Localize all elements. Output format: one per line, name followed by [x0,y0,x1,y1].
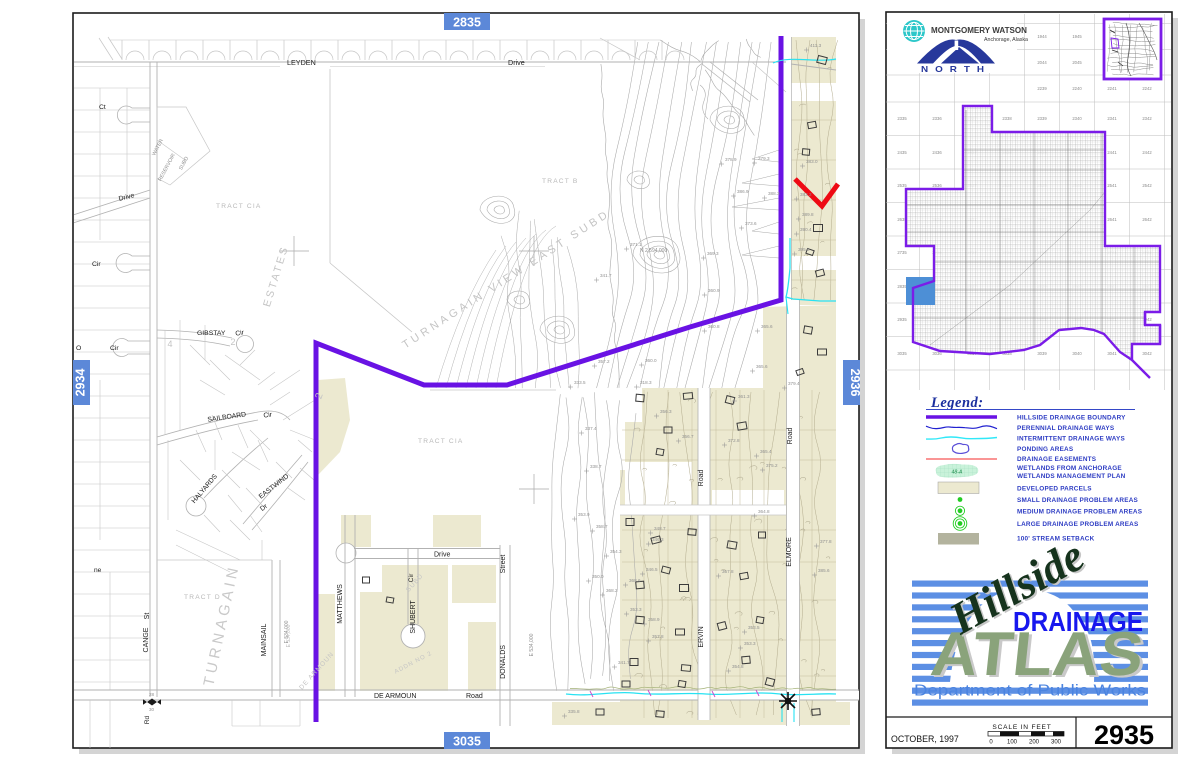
svg-text:341.7: 341.7 [618,660,630,665]
svg-text:TRACT B: TRACT B [542,178,579,185]
svg-text:356.7: 356.7 [682,434,694,439]
svg-text:2435: 2435 [897,150,907,155]
svg-text:Anchorage, Alaska: Anchorage, Alaska [984,37,1029,43]
svg-text:100: 100 [1007,740,1018,746]
svg-text:368.2: 368.2 [606,588,618,593]
svg-text:2535: 2535 [897,183,907,188]
svg-text:2934: 2934 [74,369,88,397]
svg-text:346.5: 346.5 [646,567,658,572]
svg-text:378.9: 378.9 [725,157,737,162]
svg-text:372.8: 372.8 [728,438,740,443]
svg-text:2044: 2044 [1037,60,1047,65]
svg-text:364.8: 364.8 [758,509,770,514]
svg-text:354.8: 354.8 [732,664,744,669]
svg-text:369.3: 369.3 [707,251,719,256]
svg-text:E 534,000: E 534,000 [286,624,292,647]
svg-text:3041: 3041 [1107,351,1117,356]
svg-text:357.8: 357.8 [652,634,664,639]
svg-text:357.8: 357.8 [722,569,734,574]
svg-text:SMALL DRAINAGE PROBLEM AREA: SMALL DRAINAGE PROBLEM AREAS [1017,497,1139,504]
svg-text:353.9: 353.9 [578,512,590,517]
svg-text:338.7: 338.7 [590,464,602,469]
svg-text:DRAINAGE: DRAINAGE [1013,606,1143,637]
svg-text:3042: 3042 [1142,351,1152,356]
svg-text:2340: 2340 [1072,116,1082,121]
svg-text:MEDIUM DRAINAGE PROBLEM ARE: MEDIUM DRAINAGE PROBLEM AREAS [1017,508,1143,515]
svg-text:371.1: 371.1 [630,242,642,247]
svg-text:335.8: 335.8 [568,709,580,714]
svg-text:CANGE: CANGE [143,627,150,652]
svg-text:377.8: 377.8 [820,539,832,544]
svg-text:Department of Public Works: Department of Public Works [914,683,1146,700]
svg-text:2240: 2240 [1072,86,1082,91]
svg-text:WETLANDS FROM ANCHORAGE: WETLANDS FROM ANCHORAGE [1017,465,1122,472]
svg-text:N 2,594,000: N 2,594,000 [640,248,667,254]
svg-text:Street: Street [500,555,507,574]
svg-text:2735: 2735 [897,250,907,255]
svg-text:411.3: 411.3 [810,43,822,48]
svg-text:383.0: 383.0 [806,159,818,164]
svg-text:WETLANDS MANAGEMENT PLAN: WETLANDS MANAGEMENT PLAN [1017,473,1126,480]
svg-text:2341: 2341 [1107,116,1117,121]
svg-text:2242: 2242 [1142,86,1152,91]
svg-text:360.9: 360.9 [708,288,720,293]
svg-text:2541: 2541 [1107,183,1117,188]
svg-text:2239: 2239 [1037,86,1047,91]
svg-text:390.4: 390.4 [800,227,812,232]
svg-text:356.3: 356.3 [660,409,672,414]
svg-text:Road: Road [787,428,794,445]
svg-text:ERVIN: ERVIN [698,626,705,647]
svg-text:Road: Road [466,693,483,700]
svg-text:2835: 2835 [453,16,481,30]
svg-text:365.4: 365.4 [760,449,772,454]
svg-text:2536: 2536 [932,183,942,188]
svg-text:350.0: 350.0 [592,574,604,579]
svg-text:341.7: 341.7 [600,273,612,278]
svg-text:2436: 2436 [932,150,942,155]
svg-text:386.9: 386.9 [737,189,749,194]
svg-text:2339: 2339 [1037,116,1047,121]
svg-text:3035: 3035 [453,735,481,749]
svg-text:395.0: 395.0 [798,247,810,252]
svg-text:DEVELOPED PARCELS: DEVELOPED PARCELS [1017,486,1092,493]
svg-text:2641: 2641 [1107,217,1117,222]
svg-text:2835: 2835 [897,284,907,289]
svg-text:379.3: 379.3 [758,156,770,161]
svg-text:SHUBERT: SHUBERT [410,600,417,634]
svg-text:HILLSIDE DRAINAGE BOUNDARY: HILLSIDE DRAINAGE BOUNDARY [1017,415,1126,422]
svg-text:SCALE IN FEET: SCALE IN FEET [992,724,1051,731]
svg-text:2045: 2045 [1072,60,1082,65]
svg-text:385.6: 385.6 [818,568,830,573]
svg-text:Cir: Cir [110,345,119,352]
svg-text:O: O [76,345,81,352]
svg-text:OCTOBER, 1997: OCTOBER, 1997 [891,734,959,744]
svg-text:200: 200 [1029,740,1040,746]
svg-text:1945: 1945 [1072,34,1082,39]
svg-text:358.9: 358.9 [648,617,660,622]
svg-text:337.4: 337.4 [585,426,597,431]
svg-text:DONALDS: DONALDS [500,645,507,679]
svg-text:TRACT CIA: TRACT CIA [216,203,261,210]
svg-text:ELMORE: ELMORE [786,537,793,567]
svg-text:368.6: 368.6 [629,578,641,583]
svg-text:365.6: 365.6 [761,324,773,329]
svg-text:Drive: Drive [508,58,525,67]
svg-text:PERENNIAL DRAINAGE WAYS: PERENNIAL DRAINAGE WAYS [1017,425,1115,432]
svg-text:375.2: 375.2 [766,463,778,468]
svg-text:333.5: 333.5 [574,380,586,385]
svg-text:360.8: 360.8 [708,324,720,329]
svg-text:2542: 2542 [1142,183,1152,188]
svg-text:373.6: 373.6 [745,221,757,226]
svg-text:353.5: 353.5 [748,625,760,630]
svg-text:358.7: 358.7 [596,524,608,529]
svg-text:DE ARMOUN: DE ARMOUN [374,693,416,700]
svg-text:NORTH: NORTH [921,64,991,74]
svg-text:3039: 3039 [1037,351,1047,356]
svg-text:30: 30 [149,707,155,712]
svg-text:48-A: 48-A [952,470,963,476]
svg-text:2442: 2442 [1142,150,1152,155]
svg-text:2241: 2241 [1107,86,1117,91]
svg-text:388.3: 388.3 [768,191,780,196]
svg-text:2935: 2935 [897,317,907,322]
svg-text:ne: ne [94,567,102,574]
svg-text:Cir: Cir [263,411,273,419]
svg-text:2: 2 [230,337,235,347]
svg-text:St: St [144,613,151,620]
svg-text:389.8: 389.8 [802,212,814,217]
svg-text:28: 28 [149,692,155,697]
svg-text:TRACT CIA: TRACT CIA [418,438,463,445]
svg-text:2935: 2935 [1094,720,1154,750]
svg-text:MATTHEWS: MATTHEWS [337,584,344,624]
svg-text:354.3: 354.3 [610,549,622,554]
svg-text:Ct: Ct [99,104,106,111]
svg-text:4: 4 [167,339,172,349]
svg-text:353.3: 353.3 [630,607,642,612]
svg-text:361.3: 361.3 [738,394,750,399]
svg-text:MAINSAIL: MAINSAIL [261,624,268,657]
svg-text:E 534,000: E 534,000 [529,633,535,656]
svg-text:MONTGOMERY WATSON: MONTGOMERY WATSON [931,26,1027,35]
svg-text:GIBSTAY: GIBSTAY [197,330,226,337]
svg-text:300: 300 [1051,740,1062,746]
svg-text:Legend:: Legend: [930,395,984,411]
svg-text:3035: 3035 [897,351,907,356]
svg-text:2642: 2642 [1142,217,1152,222]
svg-text:LARGE DRAINAGE PROBLEM AREA: LARGE DRAINAGE PROBLEM AREAS [1017,521,1139,528]
svg-text:383.2: 383.2 [800,192,812,197]
svg-text:PONDING AREAS: PONDING AREAS [1017,446,1074,453]
svg-text:2338: 2338 [1002,116,1012,121]
svg-text:LEYDEN: LEYDEN [287,58,316,67]
svg-text:318.3: 318.3 [640,380,652,385]
svg-text:TRACT D: TRACT D [184,594,221,601]
svg-text:Road: Road [698,470,705,487]
svg-text:348.7: 348.7 [654,526,666,531]
svg-text:3040: 3040 [1072,351,1082,356]
svg-text:2441: 2441 [1107,150,1117,155]
svg-text:DRAINAGE EASEMENTS: DRAINAGE EASEMENTS [1017,456,1097,463]
svg-text:357.2: 357.2 [598,359,610,364]
svg-text:2335: 2335 [897,116,907,121]
svg-text:Cir: Cir [92,261,101,268]
svg-text:Rd: Rd [144,715,151,724]
svg-text:379.4: 379.4 [788,381,800,386]
svg-text:2936: 2936 [848,369,862,397]
svg-text:INTERMITTENT DRAINAGE WAYS: INTERMITTENT DRAINAGE WAYS [1017,436,1125,443]
svg-text:365.6: 365.6 [756,364,768,369]
svg-text:1944: 1944 [1037,34,1047,39]
svg-text:Drive: Drive [434,552,450,559]
svg-text:346.3: 346.3 [652,537,664,542]
svg-text:2342: 2342 [1142,116,1152,121]
svg-text:2336: 2336 [932,116,942,121]
svg-text:360.0: 360.0 [645,358,657,363]
svg-text:353.3: 353.3 [744,641,756,646]
